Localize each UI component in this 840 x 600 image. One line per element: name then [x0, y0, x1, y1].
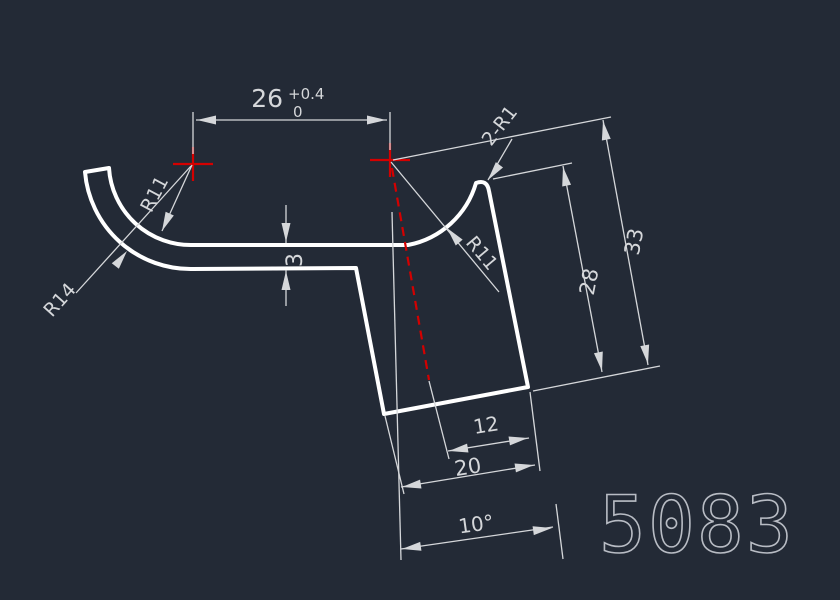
part-number-text: 5083	[599, 481, 795, 571]
dim-26-tol-upper-text: +0.4	[288, 85, 324, 103]
dim-26-text: 26	[251, 84, 283, 113]
dim-angle-text: 10°	[457, 510, 495, 539]
dim-20-text: 20	[453, 453, 483, 481]
dim-12-text: 12	[471, 411, 500, 439]
dim-33-text: 33	[620, 226, 649, 257]
dim-26-tol-lower-text: 0	[293, 103, 303, 121]
dim-28-text: 28	[575, 266, 604, 297]
dim-thickness-text: 3	[283, 253, 308, 267]
cad-drawing-canvas: 26 +0.4 0 3 R11 R14 R11 2-R1 28 33 12 20…	[0, 0, 840, 600]
